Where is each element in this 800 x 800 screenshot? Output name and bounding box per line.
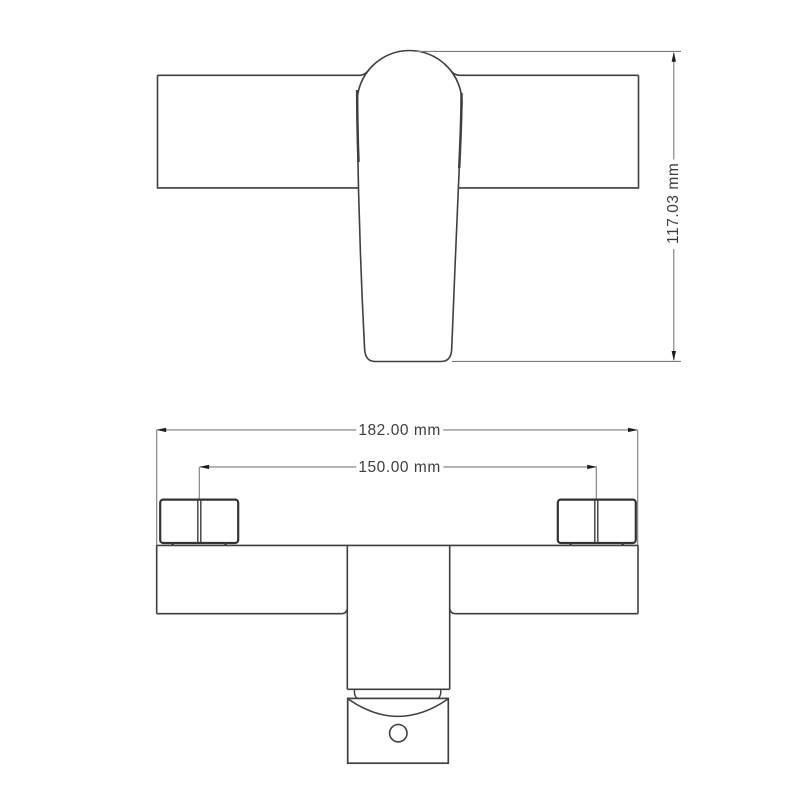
svg-text:150.00 mm: 150.00 mm <box>358 459 441 476</box>
svg-text:182.00 mm: 182.00 mm <box>358 422 441 439</box>
svg-text:117.03 mm: 117.03 mm <box>665 163 682 244</box>
